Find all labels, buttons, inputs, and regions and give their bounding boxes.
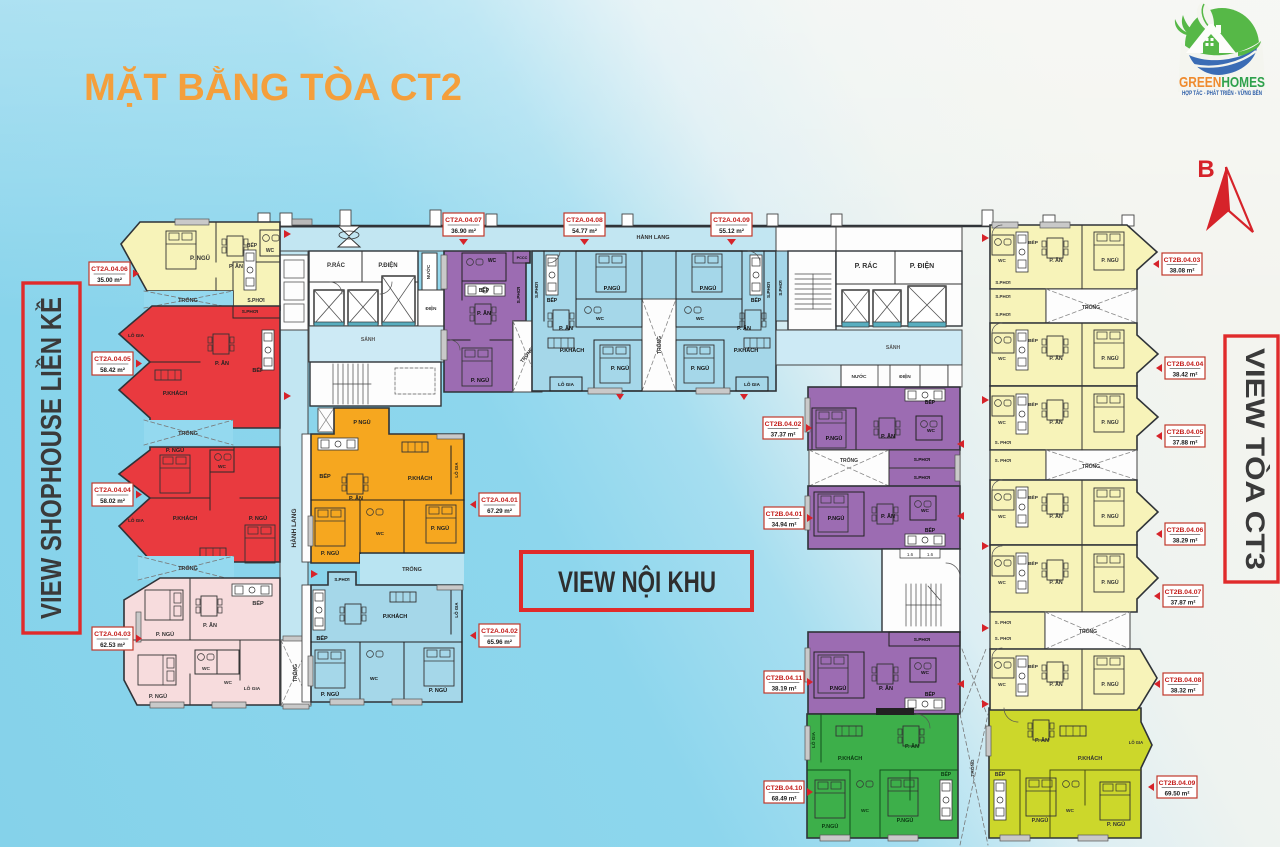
svg-text:ĐIỆN: ĐIỆN — [426, 304, 438, 311]
svg-text:BẾP: BẾP — [479, 287, 490, 294]
svg-text:P. NGỦ: P. NGỦ — [190, 255, 210, 262]
svg-text:BẾP: BẾP — [925, 691, 936, 698]
svg-text:P. ĂN: P. ĂN — [1049, 419, 1062, 426]
svg-text:CT2B.04.09: CT2B.04.09 — [1159, 780, 1196, 787]
svg-text:LÔ GIA: LÔ GIA — [744, 380, 761, 387]
svg-text:WC: WC — [596, 316, 605, 322]
svg-text:P. ĂN: P. ĂN — [477, 310, 491, 317]
svg-text:58.02 m²: 58.02 m² — [100, 498, 125, 505]
svg-text:54.77 m²: 54.77 m² — [572, 228, 597, 235]
svg-text:TRỐNG: TRỐNG — [840, 457, 858, 464]
svg-text:S.PHƠI: S.PHƠI — [534, 282, 539, 298]
svg-text:BẾP: BẾP — [925, 399, 936, 406]
svg-text:P. ĂN: P. ĂN — [881, 433, 895, 440]
svg-text:P.KHÁCH: P.KHÁCH — [383, 613, 407, 620]
svg-text:P.NGỦ: P.NGỦ — [700, 285, 717, 292]
svg-text:65.96 m²: 65.96 m² — [487, 639, 512, 646]
svg-text:WC: WC — [266, 248, 275, 254]
svg-text:WC: WC — [488, 258, 497, 264]
svg-text:P.NGỦ: P.NGỦ — [822, 823, 839, 830]
svg-text:S.PHƠI: S.PHƠI — [914, 457, 931, 463]
svg-text:LÔ GIA: LÔ GIA — [128, 331, 145, 338]
svg-text:WC: WC — [998, 356, 1006, 361]
svg-text:37.87 m²: 37.87 m² — [1171, 599, 1196, 606]
svg-text:P. ĂN: P. ĂN — [1049, 579, 1062, 586]
svg-text:P.NGỦ: P.NGỦ — [1032, 817, 1049, 824]
svg-text:WC: WC — [927, 428, 936, 434]
svg-text:P. NGỦ: P. NGỦ — [1101, 513, 1118, 520]
svg-text:38.08 m²: 38.08 m² — [1170, 267, 1195, 274]
svg-text:LÔ GIA: LÔ GIA — [1129, 740, 1143, 745]
svg-text:CT2B.04.07: CT2B.04.07 — [1165, 589, 1202, 596]
svg-text:VIEW TÒA CT3: VIEW TÒA CT3 — [1240, 348, 1271, 570]
svg-text:WC: WC — [921, 508, 930, 514]
svg-text:TRỐNG: TRỐNG — [969, 759, 976, 777]
svg-text:P. ĂN: P. ĂN — [349, 495, 363, 502]
svg-text:WC: WC — [376, 531, 385, 537]
svg-text:P.KHÁCH: P.KHÁCH — [408, 475, 432, 482]
svg-text:WC: WC — [998, 580, 1006, 585]
svg-text:VIEW NỘI KHU: VIEW NỘI KHU — [558, 565, 716, 599]
svg-text:P.NGỦ: P.NGỦ — [897, 817, 914, 824]
svg-text:CT2B.04.03: CT2B.04.03 — [1164, 257, 1201, 264]
svg-text:37.37 m²: 37.37 m² — [771, 431, 796, 438]
svg-text:B: B — [1197, 156, 1214, 183]
svg-text:SẢNH: SẢNH — [361, 336, 376, 343]
svg-text:38.42 m²: 38.42 m² — [1173, 371, 1198, 378]
svg-text:VIEW SHOPHOUSE LIỀN KỀ: VIEW SHOPHOUSE LIỀN KỀ — [34, 297, 68, 619]
svg-text:LÔ GIA: LÔ GIA — [128, 516, 145, 523]
svg-text:BẾP: BẾP — [1028, 337, 1039, 344]
svg-text:P. NGỦ: P. NGỦ — [249, 515, 267, 522]
svg-text:CT2A.04.05: CT2A.04.05 — [94, 356, 131, 363]
svg-text:P. ĂN: P. ĂN — [1049, 681, 1062, 688]
svg-text:67.29 m²: 67.29 m² — [487, 508, 512, 515]
svg-text:WC: WC — [218, 464, 227, 470]
svg-text:CT2A.04.02: CT2A.04.02 — [481, 628, 518, 635]
svg-text:S.PHƠI: S.PHƠI — [995, 294, 1010, 299]
svg-text:P.NGỦ: P.NGỦ — [826, 435, 843, 442]
svg-text:CT2A.04.08: CT2A.04.08 — [566, 217, 603, 224]
svg-text:38.19 m²: 38.19 m² — [772, 685, 797, 692]
svg-text:CT2A.04.07: CT2A.04.07 — [445, 217, 482, 224]
svg-text:S. PHƠI: S. PHƠI — [995, 458, 1011, 463]
svg-text:S. PHƠI: S. PHƠI — [995, 620, 1011, 625]
svg-text:P.KHÁCH: P.KHÁCH — [838, 755, 862, 762]
svg-text:37.88 m²: 37.88 m² — [1173, 439, 1198, 446]
svg-text:P NGỦ: P NGỦ — [353, 419, 370, 426]
svg-text:69.50 m²: 69.50 m² — [1165, 790, 1190, 797]
svg-text:S.PHƠI: S.PHƠI — [995, 280, 1010, 285]
svg-text:P.KHÁCH: P.KHÁCH — [173, 515, 197, 522]
svg-text:SẢNH: SẢNH — [886, 344, 901, 351]
svg-text:P. ĂN: P. ĂN — [879, 685, 893, 692]
svg-text:34.94 m²: 34.94 m² — [772, 521, 797, 528]
svg-text:WC: WC — [861, 808, 870, 814]
svg-text:HỢP TÁC - PHÁT TRIỂN - VỮNG BỀ: HỢP TÁC - PHÁT TRIỂN - VỮNG BỀN — [1182, 90, 1262, 97]
svg-text:P. ĂN: P. ĂN — [1049, 513, 1062, 520]
svg-text:P.KHÁCH: P.KHÁCH — [1078, 755, 1102, 762]
svg-text:S.PHƠI: S.PHƠI — [995, 312, 1010, 317]
svg-text:P. ĂN: P. ĂN — [1049, 355, 1062, 362]
svg-text:P. NGỦ: P. NGỦ — [1101, 257, 1118, 264]
svg-text:P. NGỦ: P. NGỦ — [321, 691, 339, 698]
svg-text:WC: WC — [998, 420, 1006, 425]
svg-text:P. ĂN: P. ĂN — [1035, 737, 1049, 744]
svg-text:P. ĂN: P. ĂN — [559, 325, 573, 332]
svg-text:LÔ GIA: LÔ GIA — [558, 380, 575, 387]
svg-text:S.PHƠI: S.PHƠI — [516, 286, 522, 303]
svg-text:BẾP: BẾP — [1028, 494, 1039, 501]
svg-text:PCCC: PCCC — [517, 256, 528, 260]
svg-text:S.PHƠI: S.PHƠI — [247, 298, 265, 304]
svg-text:BẾP: BẾP — [319, 473, 331, 480]
svg-text:TRỐNG: TRỐNG — [178, 297, 198, 304]
svg-text:P. NGỦ: P. NGỦ — [149, 693, 167, 700]
svg-text:P.KHÁCH: P.KHÁCH — [163, 390, 187, 397]
svg-text:MẶT BẰNG TÒA CT2: MẶT BẰNG TÒA CT2 — [84, 65, 462, 109]
svg-text:P. NGỦ: P. NGỦ — [431, 525, 449, 532]
svg-text:68.49 m²: 68.49 m² — [772, 795, 797, 802]
svg-text:38.32 m²: 38.32 m² — [1171, 687, 1196, 694]
svg-text:P. NGỦ: P. NGỦ — [166, 447, 184, 454]
svg-text:P. ĂN: P. ĂN — [1049, 257, 1062, 264]
svg-text:TRỐNG: TRỐNG — [402, 566, 422, 573]
svg-text:BẾP: BẾP — [1028, 401, 1039, 408]
svg-text:P.NGỦ: P.NGỦ — [828, 515, 845, 522]
svg-text:WC: WC — [696, 316, 705, 322]
svg-text:P. ĐIỆN: P. ĐIỆN — [910, 261, 934, 270]
svg-text:CT2B.04.10: CT2B.04.10 — [766, 785, 803, 792]
svg-text:S.PHƠI: S.PHƠI — [242, 309, 259, 315]
svg-text:P. ĂN: P. ĂN — [229, 263, 243, 270]
svg-text:P. NGỦ: P. NGỦ — [1101, 355, 1118, 362]
svg-text:WC: WC — [998, 514, 1006, 519]
svg-text:TRỐNG: TRỐNG — [1079, 628, 1097, 635]
svg-text:WC: WC — [998, 682, 1006, 687]
svg-text:36.90 m²: 36.90 m² — [451, 228, 476, 235]
svg-text:HÀNH LANG: HÀNH LANG — [289, 509, 298, 548]
svg-text:35.00 m²: 35.00 m² — [97, 277, 122, 284]
svg-text:BẾP: BẾP — [941, 771, 952, 778]
svg-text:WC: WC — [202, 666, 211, 672]
svg-text:WC: WC — [1066, 808, 1075, 814]
svg-text:CT2B.04.04: CT2B.04.04 — [1167, 361, 1204, 368]
svg-text:LÔ GIA: LÔ GIA — [454, 602, 459, 618]
svg-text:P. NGỦ: P. NGỦ — [691, 365, 709, 372]
svg-text:P. NGỦ: P. NGỦ — [1101, 681, 1118, 688]
svg-text:BẾP: BẾP — [995, 771, 1006, 778]
svg-text:CT2A.04.06: CT2A.04.06 — [91, 266, 128, 273]
svg-text:S.PHƠI: S.PHƠI — [778, 280, 783, 295]
svg-text:P. NGỦ: P. NGỦ — [1107, 821, 1125, 828]
svg-text:P.RÁC: P.RÁC — [327, 262, 346, 269]
svg-text:HÀNH LANG: HÀNH LANG — [637, 234, 670, 241]
svg-text:P. ĂN: P. ĂN — [203, 622, 217, 629]
svg-text:WC: WC — [370, 676, 379, 682]
svg-text:P.ĐIỆN: P.ĐIỆN — [378, 261, 397, 269]
svg-text:BẾP: BẾP — [1028, 663, 1039, 670]
svg-text:1.6: 1.6 — [907, 552, 914, 557]
svg-text:WC: WC — [921, 670, 930, 676]
svg-text:P. NGỦ: P. NGỦ — [471, 377, 489, 384]
svg-text:BẾP: BẾP — [1028, 239, 1039, 246]
svg-text:TRỐNG: TRỐNG — [292, 664, 299, 682]
svg-text:TRỐNG: TRỐNG — [178, 565, 198, 572]
svg-text:P. NGỦ: P. NGỦ — [1101, 579, 1118, 586]
svg-text:S.PHƠI: S.PHƠI — [766, 282, 771, 298]
svg-text:P. NGỦ: P. NGỦ — [156, 631, 174, 638]
svg-text:P. ĂN: P. ĂN — [881, 513, 895, 520]
svg-text:WC: WC — [998, 258, 1006, 263]
svg-text:1.6: 1.6 — [927, 552, 934, 557]
svg-text:CT2B.04.06: CT2B.04.06 — [1167, 527, 1204, 534]
svg-text:TRỐNG: TRỐNG — [656, 336, 663, 354]
svg-text:BẾP: BẾP — [247, 242, 258, 249]
svg-text:38.29 m²: 38.29 m² — [1173, 537, 1198, 544]
svg-text:CT2B.04.02: CT2B.04.02 — [765, 421, 802, 428]
svg-text:S. PHƠI: S. PHƠI — [995, 636, 1011, 641]
svg-text:P. RÁC: P. RÁC — [855, 261, 878, 270]
svg-text:P. ĂN: P. ĂN — [737, 325, 751, 332]
svg-text:55.12 m²: 55.12 m² — [719, 228, 744, 235]
svg-text:CT2A.04.09: CT2A.04.09 — [713, 217, 750, 224]
svg-text:CT2B.04.11: CT2B.04.11 — [766, 675, 802, 682]
svg-text:S.PHƠI: S.PHƠI — [334, 577, 349, 582]
svg-text:CT2A.04.03: CT2A.04.03 — [94, 631, 131, 638]
svg-text:TRỐNG: TRỐNG — [1082, 304, 1100, 311]
svg-text:S.PHƠI: S.PHƠI — [914, 475, 931, 481]
svg-text:CT2B.04.01: CT2B.04.01 — [766, 511, 803, 518]
svg-text:P. ĂN: P. ĂN — [215, 360, 229, 367]
svg-text:CT2B.04.08: CT2B.04.08 — [1165, 677, 1202, 684]
svg-text:P. NGỦ: P. NGỦ — [321, 550, 339, 557]
svg-text:TRỐNG: TRỐNG — [178, 430, 198, 437]
svg-text:BẾP: BẾP — [316, 635, 328, 642]
svg-text:S. PHƠI: S. PHƠI — [995, 440, 1011, 445]
svg-text:BẾP: BẾP — [252, 600, 264, 607]
svg-text:WC: WC — [224, 680, 233, 686]
svg-text:P.NGỦ: P.NGỦ — [830, 685, 847, 692]
svg-text:P. NGỦ: P. NGỦ — [429, 687, 447, 694]
svg-text:CT2B.04.05: CT2B.04.05 — [1167, 429, 1204, 436]
svg-text:CT2A.04.04: CT2A.04.04 — [94, 487, 131, 494]
svg-text:P. NGỦ: P. NGỦ — [611, 365, 629, 372]
svg-text:P. NGỦ: P. NGỦ — [1101, 419, 1118, 426]
svg-text:BẾP: BẾP — [751, 297, 762, 304]
svg-text:CT2A.04.01: CT2A.04.01 — [481, 497, 518, 504]
svg-text:TRỐNG: TRỐNG — [1082, 463, 1100, 470]
svg-text:62.53 m²: 62.53 m² — [100, 642, 125, 649]
svg-text:BẾP: BẾP — [547, 297, 558, 304]
svg-text:LÔ GIA: LÔ GIA — [454, 462, 459, 478]
svg-text:S.PHƠI: S.PHƠI — [914, 637, 931, 643]
svg-text:BẾP: BẾP — [925, 527, 936, 534]
svg-text:P. ĂN: P. ĂN — [905, 743, 919, 750]
svg-text:BẾP: BẾP — [1028, 560, 1039, 567]
svg-text:P.NGỦ: P.NGỦ — [604, 285, 621, 292]
svg-text:NƯỚC: NƯỚC — [424, 264, 431, 279]
svg-text:GREENHOMES: GREENHOMES — [1179, 74, 1265, 91]
svg-text:58.42 m²: 58.42 m² — [100, 367, 125, 374]
